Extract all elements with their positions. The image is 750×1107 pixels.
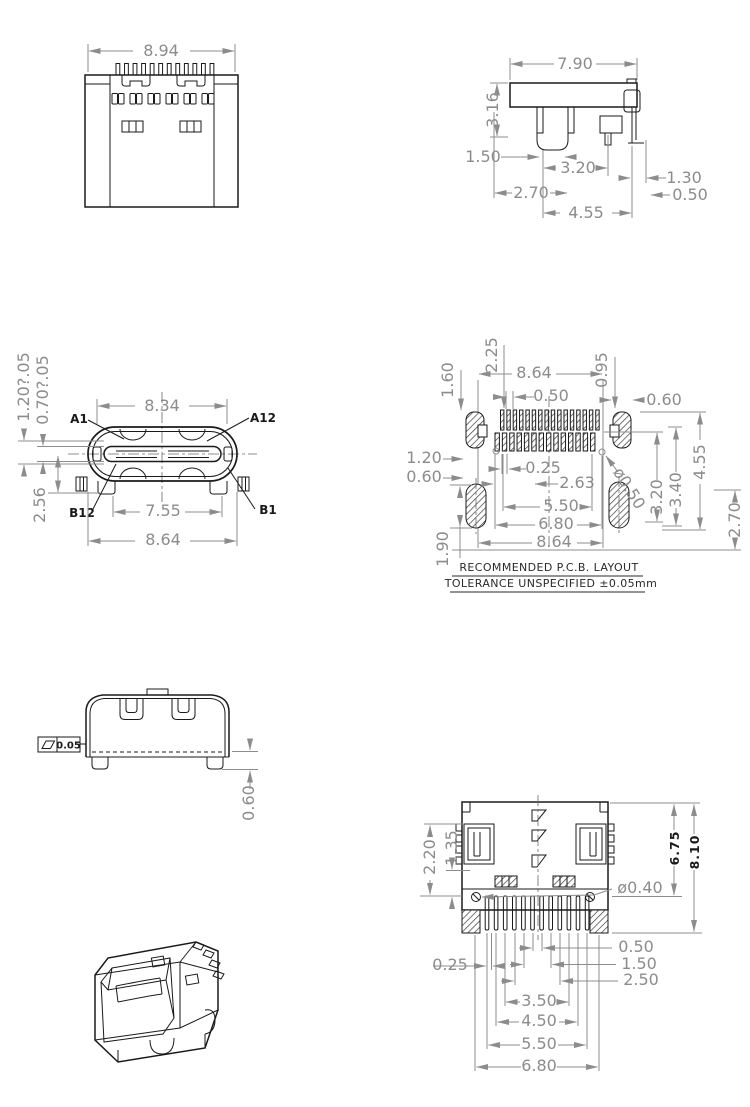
terminal — [540, 896, 544, 930]
dim-050-pitch: 0.50 — [533, 386, 569, 405]
pin — [150, 64, 154, 76]
dim-190: 1.90 — [433, 531, 452, 567]
pad — [569, 433, 573, 451]
flatness-icon — [42, 741, 55, 749]
side-foot — [590, 910, 608, 933]
dim-550: 5.50 — [521, 1034, 557, 1053]
pad — [510, 433, 514, 451]
feet — [92, 757, 223, 769]
dim-160: 1.60 — [438, 362, 457, 398]
contact-pair — [202, 94, 208, 105]
hole-leader — [594, 889, 612, 895]
contact-pair — [112, 94, 118, 105]
contact-pair — [155, 94, 161, 105]
pcb-note-title: RECOMMENDED P.C.B. LAYOUT — [459, 561, 638, 574]
pin-label-a1: A1 — [70, 412, 88, 426]
leg-post — [568, 107, 574, 133]
dim-025: 0.25 — [432, 955, 468, 974]
pad — [502, 433, 506, 451]
pad — [513, 410, 516, 430]
pad — [576, 433, 580, 451]
iso-window — [185, 974, 198, 985]
dim-side-height: 3.16 — [483, 92, 502, 128]
dim-060-left: 0.60 — [406, 467, 442, 486]
pin-label-b1: B1 — [259, 503, 277, 517]
dim-810: 8.10 — [687, 835, 702, 870]
terminal — [558, 896, 562, 930]
dim-150: 1.50 — [465, 147, 501, 166]
contact-pair — [137, 94, 143, 105]
hook-slot-right-notch — [610, 425, 619, 437]
pad-row-top — [501, 410, 600, 430]
dim-350: 3.50 — [521, 991, 557, 1010]
serration — [608, 835, 614, 842]
latch-brackets — [122, 75, 205, 86]
body-outline — [462, 802, 608, 910]
contact-cell — [495, 876, 517, 887]
latch-pockets — [120, 699, 195, 720]
pin — [116, 64, 120, 76]
serration — [608, 846, 614, 853]
boss-hole-hatch — [473, 894, 479, 900]
shell-outline — [85, 75, 238, 207]
contact-pair — [130, 94, 136, 105]
pin — [167, 64, 171, 76]
terminal — [485, 896, 489, 930]
pad — [520, 410, 523, 430]
terminal — [567, 896, 571, 930]
engineering-drawing-page: 8.94 7.90 3.16 1.50 — [0, 0, 750, 1107]
dim-450: 4.50 — [521, 1011, 557, 1030]
pad — [564, 410, 567, 430]
pin-label-a12: A12 — [250, 411, 276, 425]
dim-120: 1.20 — [406, 448, 442, 467]
dim-050: 0.50 — [672, 185, 708, 204]
pad — [501, 410, 504, 430]
dim-135: 1.35 — [442, 830, 461, 866]
terminal — [549, 896, 553, 930]
pad — [561, 433, 565, 451]
smt-foot — [600, 116, 622, 133]
pin — [133, 64, 137, 76]
terminal — [494, 896, 498, 930]
dim-864: 8.64 — [145, 530, 181, 549]
leader-line — [207, 418, 249, 441]
pad — [532, 433, 536, 451]
contact-cells — [122, 121, 201, 132]
pad — [526, 410, 529, 430]
side-foot — [462, 910, 480, 933]
dim-tongue-2: 0.70?.05 — [33, 355, 52, 425]
pad — [539, 410, 542, 430]
pad — [517, 433, 521, 451]
latch-window-right-inner — [580, 828, 602, 860]
dim-256: 2.56 — [30, 487, 49, 523]
pin — [210, 64, 214, 76]
serration — [608, 824, 614, 831]
leader-line — [228, 468, 255, 509]
terminal — [576, 896, 580, 930]
terminal — [503, 896, 507, 930]
isometric-view — [95, 942, 224, 1062]
paste-hole — [599, 449, 605, 455]
center-key-tabs — [532, 810, 546, 867]
pcb-note-tolerance: TOLERANCE UNSPECIFIED ±0.05mm — [444, 577, 658, 590]
pad — [577, 410, 580, 430]
dim-455: 4.55 — [568, 203, 604, 222]
flatness-value: 0.05 — [56, 741, 81, 752]
contact-pair — [166, 94, 172, 105]
pad — [591, 433, 595, 451]
hook-slot-left-notch — [478, 425, 487, 437]
shell-outline — [86, 695, 229, 757]
dim-550: 5.50 — [543, 496, 579, 515]
terminal — [513, 896, 517, 930]
dim-225: 2.25 — [482, 337, 501, 373]
latch-pockets-inner — [126, 699, 189, 713]
dim-025: 0.25 — [525, 458, 561, 477]
pad — [551, 410, 554, 430]
pin — [202, 64, 206, 76]
dim-220: 2.20 — [420, 839, 439, 875]
pad — [507, 410, 510, 430]
shell-plate — [510, 83, 637, 107]
through-leg — [537, 133, 568, 150]
pad — [532, 410, 535, 430]
top-pin-row — [116, 64, 214, 76]
bottom-legs — [98, 481, 227, 494]
dim-060-right: 0.60 — [646, 390, 682, 409]
mating-face-view: 8.34 A1 A12 B12 B1 7.55 — [14, 352, 277, 549]
bottom-view: ø0.40 2.20 1.35 6.75 8.10 0.50 1.50 2.50… — [420, 795, 702, 1075]
terminal — [522, 896, 526, 930]
dim-overall-width: 8.94 — [143, 41, 179, 60]
side-foot — [238, 477, 249, 491]
dim-864-bottom: 8.64 — [536, 532, 572, 551]
dim-680: 6.80 — [538, 514, 574, 533]
pad — [554, 433, 558, 451]
front-view: 8.94 — [85, 41, 238, 207]
top-tab — [147, 689, 168, 695]
pcb-layout-view: 8.64 2.25 1.60 0.95 0.50 0.60 1.20 0.60 — [406, 337, 744, 592]
leader-line — [92, 464, 116, 511]
dim-hole-040: ø0.40 — [617, 878, 662, 897]
contact-pair — [173, 94, 179, 105]
dim-455: 4.55 — [690, 444, 709, 480]
pin-label-b12: B12 — [69, 506, 95, 520]
contact-cell — [553, 876, 575, 887]
pad — [583, 433, 587, 451]
pin — [193, 64, 197, 76]
pin — [142, 64, 146, 76]
dim-263: 2.63 — [559, 473, 595, 492]
contact-pair — [184, 94, 190, 105]
pad — [583, 410, 586, 430]
dim-680: 6.80 — [521, 1056, 557, 1075]
pin — [184, 64, 188, 76]
iso-face-oval — [101, 958, 174, 1042]
dim-060-standoff: 0.60 — [239, 785, 258, 821]
dim-755: 7.55 — [145, 501, 181, 520]
leg-post — [537, 107, 543, 133]
pad — [524, 433, 528, 451]
serration — [608, 857, 614, 864]
contact-pair — [148, 94, 154, 105]
pad — [546, 433, 550, 451]
connector-drawing: 8.94 7.90 3.16 1.50 — [0, 0, 750, 1107]
pad-row-bottom — [495, 433, 595, 451]
dim-320: 3.20 — [560, 158, 596, 177]
pad — [570, 410, 573, 430]
pad — [589, 410, 592, 430]
serration — [456, 824, 462, 831]
pad — [545, 410, 548, 430]
side-foot — [76, 477, 87, 491]
contact-window-row — [112, 94, 214, 105]
pin — [176, 64, 180, 76]
rear-view: 0.05 0.60 — [38, 689, 258, 821]
dim-270: 2.70 — [725, 502, 744, 538]
terminal — [531, 896, 535, 930]
dim-side-width: 7.90 — [557, 54, 593, 73]
leader-line — [88, 420, 124, 439]
pin — [159, 64, 163, 76]
terminal-row — [485, 896, 589, 930]
pad — [539, 433, 543, 451]
dim-095: 0.95 — [592, 352, 611, 388]
dim-250: 2.50 — [623, 970, 659, 989]
contact-pair — [191, 94, 197, 105]
dim-864-top: 8.64 — [516, 363, 552, 382]
dim-675: 6.75 — [667, 831, 682, 866]
dim-320: 3.20 — [647, 479, 666, 515]
pad — [596, 410, 599, 430]
latch-window-left-inner — [468, 828, 490, 860]
dim-tongue-1: 1.20?.05 — [14, 352, 33, 422]
shell-inner — [90, 699, 225, 758]
pin — [125, 64, 129, 76]
contact-pair — [119, 94, 125, 105]
contact-pair — [209, 94, 215, 105]
dim-340: 3.40 — [666, 472, 685, 508]
side-view: 7.90 3.16 1.50 3.20 1.30 2.70 — [465, 54, 708, 222]
pad — [558, 410, 561, 430]
